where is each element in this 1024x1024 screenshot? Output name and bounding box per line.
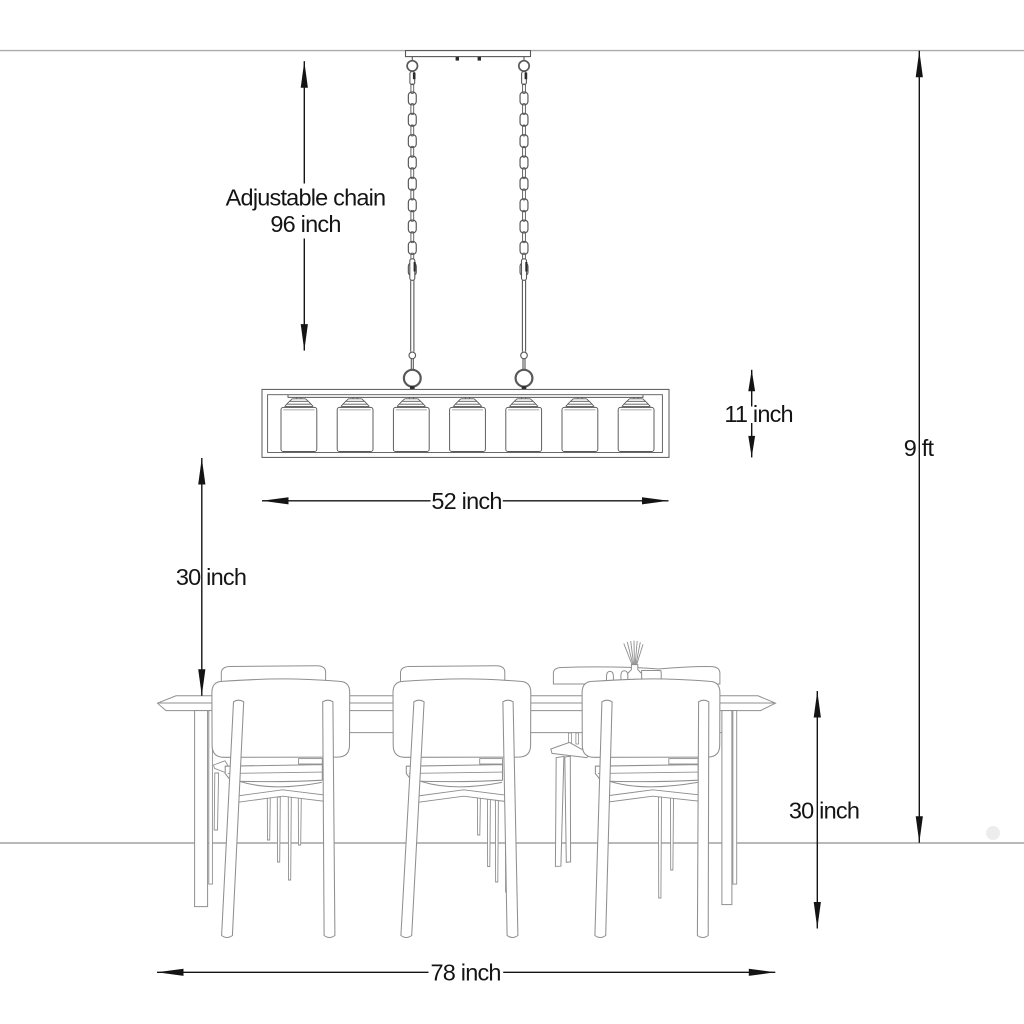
svg-text:11 inch: 11 inch (724, 401, 792, 427)
svg-text:78 inch: 78 inch (431, 959, 501, 985)
svg-text:Adjustable chain: Adjustable chain (226, 185, 386, 211)
svg-text:9 ft: 9 ft (904, 435, 935, 461)
svg-text:30 inch: 30 inch (789, 798, 859, 824)
svg-text:52 inch: 52 inch (431, 488, 501, 514)
svg-text:30 inch: 30 inch (176, 564, 246, 590)
svg-text:96 inch: 96 inch (270, 211, 340, 237)
